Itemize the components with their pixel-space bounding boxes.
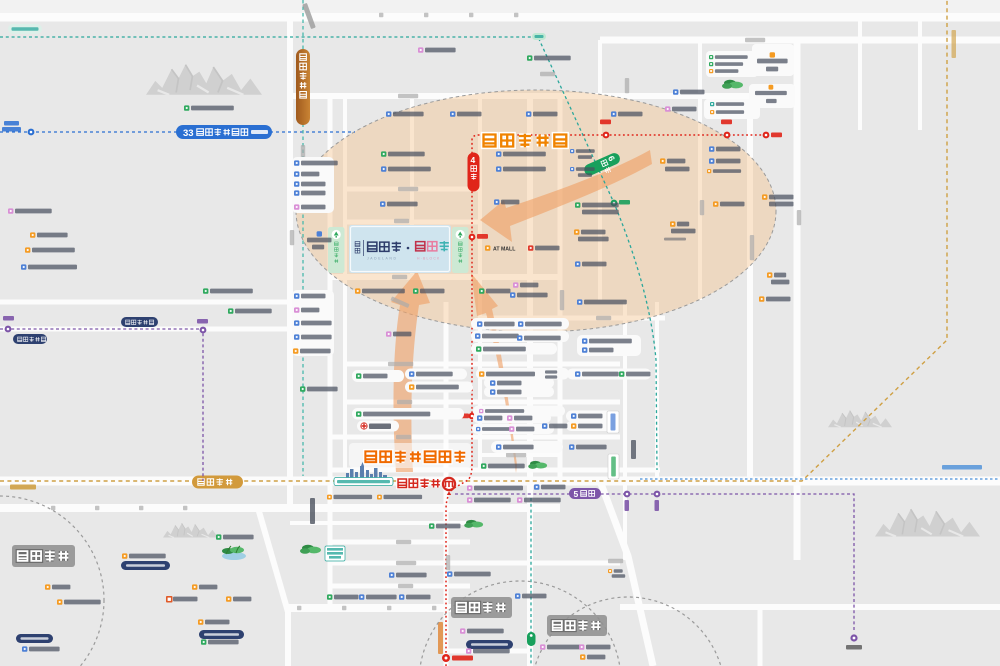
svg-text:JADELAND: JADELAND: [367, 257, 398, 261]
svg-text:H·BLOCK: H·BLOCK: [417, 257, 440, 261]
svg-text:33: 33: [183, 128, 194, 139]
svg-text:5: 5: [574, 489, 579, 499]
svg-text:4: 4: [471, 155, 476, 165]
svg-text:AT MALL: AT MALL: [493, 247, 516, 253]
